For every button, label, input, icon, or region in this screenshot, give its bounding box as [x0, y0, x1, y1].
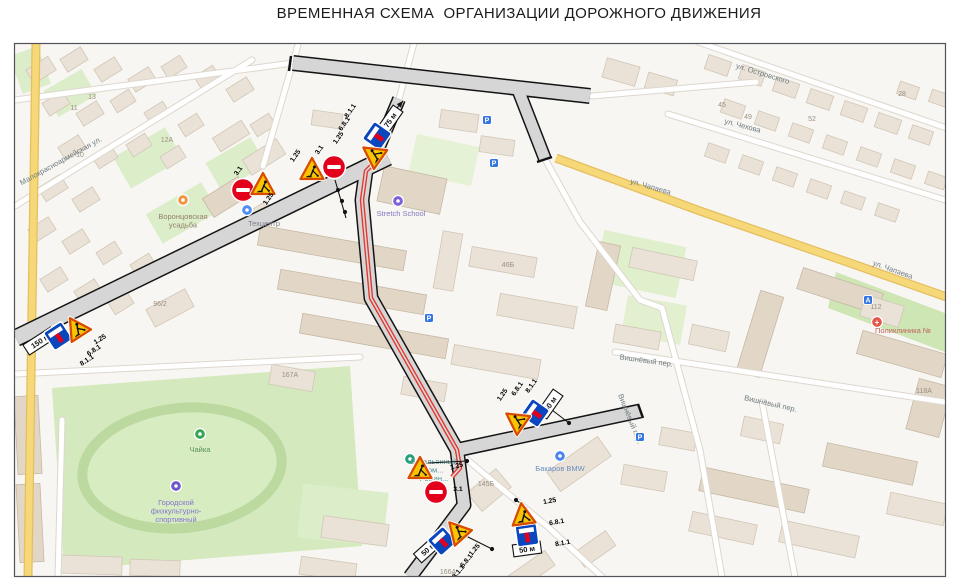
- parking-icon: P: [483, 116, 492, 125]
- no-entry-sign-3.1: [322, 155, 347, 180]
- leader-dot: [514, 498, 518, 502]
- parking-icon: P: [636, 433, 645, 442]
- building-number: 52: [808, 116, 816, 123]
- sign-code-label: 3.1: [453, 486, 463, 493]
- building-number: 12А: [161, 137, 174, 144]
- building-number: 45: [718, 102, 726, 109]
- building-number: 145Б: [478, 481, 495, 488]
- svg-text:P: P: [485, 118, 490, 125]
- svg-text:P: P: [427, 316, 432, 323]
- poi-label: Поликлиника №: [875, 326, 931, 335]
- leader-dot: [567, 421, 571, 425]
- poi-label: Бакаров BMW: [535, 464, 585, 473]
- svg-text:A: A: [865, 298, 870, 305]
- building-number: 96/2: [153, 301, 167, 308]
- no-entry-sign-3.1: [424, 480, 449, 505]
- building-number: 46Б: [502, 262, 515, 269]
- building: [130, 559, 181, 577]
- parking-icon: P: [490, 159, 499, 168]
- map-canvas: 11131012А96/246Б167А145Б112118А454952281…: [0, 0, 960, 587]
- leader-dot: [465, 459, 469, 463]
- bus-stop-icon: A: [864, 296, 873, 305]
- leader-dot: [340, 199, 344, 203]
- map-content: 11131012А96/246Б167А145Б112118А454952281…: [9, 42, 958, 587]
- building: [56, 555, 123, 575]
- leader-dot: [490, 547, 494, 551]
- building-number: 118А: [916, 388, 932, 395]
- page: ВРЕМЕННАЯ СХЕМА ОРГАНИЗАЦИИ ДОРОЖНОГО ДВ…: [0, 0, 960, 587]
- leader-dot: [343, 210, 347, 214]
- building-number: 167А: [282, 372, 299, 379]
- building-number: 13: [88, 94, 96, 101]
- leader-dot: [336, 188, 340, 192]
- svg-text:P: P: [638, 435, 643, 442]
- building-number: 49: [744, 114, 752, 121]
- building-number: 11: [70, 105, 77, 112]
- building-number: 112: [870, 304, 881, 311]
- building-number: 28: [898, 91, 906, 98]
- poi-label: Чайка: [190, 445, 212, 454]
- svg-text:P: P: [492, 161, 497, 168]
- parking-icon: P: [425, 314, 434, 323]
- poi-label: Техцентр: [248, 219, 280, 228]
- poi-label: Stretch School: [377, 209, 426, 218]
